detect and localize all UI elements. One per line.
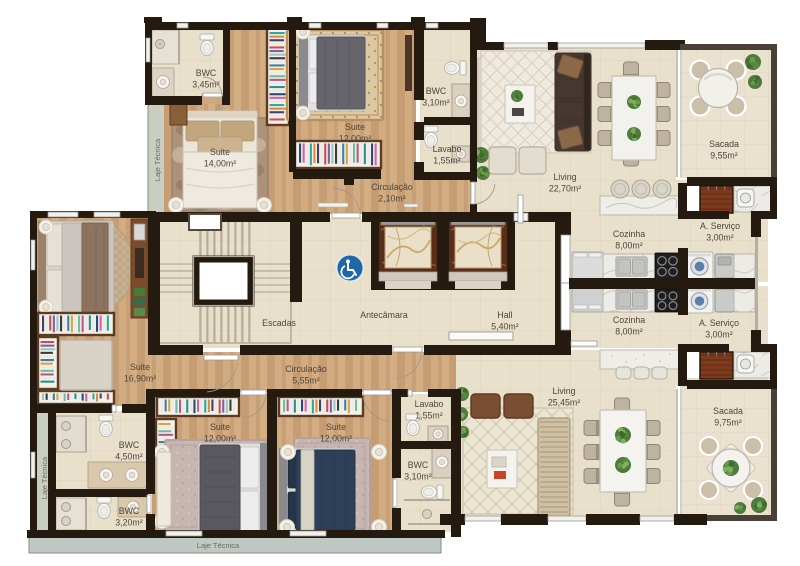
svg-text:1,55m²: 1,55m²: [415, 411, 442, 421]
svg-text:14,00m²: 14,00m²: [204, 159, 236, 169]
svg-text:2,10m²: 2,10m²: [378, 194, 405, 204]
svg-text:3,10m²: 3,10m²: [404, 472, 431, 482]
svg-text:Sacada: Sacada: [713, 406, 743, 416]
svg-text:Living: Living: [554, 172, 577, 182]
svg-text:3,10m²: 3,10m²: [422, 98, 449, 108]
svg-text:25,45m²: 25,45m²: [548, 398, 580, 408]
svg-text:Suite: Suite: [130, 362, 150, 372]
svg-text:BWC: BWC: [196, 68, 217, 78]
svg-text:BWC: BWC: [119, 506, 140, 516]
svg-text:1,55m²: 1,55m²: [433, 156, 460, 166]
svg-text:12,00m²: 12,00m²: [320, 434, 352, 444]
svg-text:12,00m²: 12,00m²: [339, 134, 371, 144]
svg-text:5,55m²: 5,55m²: [292, 376, 319, 386]
svg-text:8,00m²: 8,00m²: [615, 241, 642, 251]
svg-text:3,00m²: 3,00m²: [706, 233, 733, 243]
svg-text:12,00m²: 12,00m²: [204, 434, 236, 444]
svg-text:Suite: Suite: [326, 422, 346, 432]
svg-text:Laje Técnica: Laje Técnica: [197, 541, 240, 550]
svg-text:Suite: Suite: [345, 122, 365, 132]
svg-text:Living: Living: [553, 386, 576, 396]
svg-text:Circulação: Circulação: [371, 182, 413, 192]
svg-text:16,90m²: 16,90m²: [124, 374, 156, 384]
svg-text:Laje Técnica: Laje Técnica: [40, 456, 49, 499]
svg-text:Sacada: Sacada: [709, 139, 739, 149]
svg-text:Lavabo: Lavabo: [433, 144, 462, 154]
svg-text:Suite: Suite: [210, 147, 230, 157]
svg-text:A. Serviço: A. Serviço: [699, 318, 739, 328]
svg-text:Suite: Suite: [210, 422, 230, 432]
svg-text:3,00m²: 3,00m²: [705, 330, 732, 340]
svg-text:5,40m²: 5,40m²: [491, 322, 518, 332]
svg-text:8,00m²: 8,00m²: [615, 327, 642, 337]
svg-text:Hall: Hall: [497, 310, 512, 320]
svg-text:22,70m²: 22,70m²: [549, 184, 581, 194]
svg-text:Circulação: Circulação: [285, 364, 327, 374]
svg-text:Lavabo: Lavabo: [415, 399, 444, 409]
svg-text:A. Serviço: A. Serviço: [700, 221, 740, 231]
svg-text:Antecâmara: Antecâmara: [360, 310, 408, 320]
svg-text:3,45m²: 3,45m²: [192, 80, 219, 90]
svg-text:Laje Técnica: Laje Técnica: [153, 138, 162, 181]
svg-text:Cozinha: Cozinha: [613, 229, 645, 239]
svg-text:BWC: BWC: [426, 86, 447, 96]
svg-text:3,20m²: 3,20m²: [115, 518, 142, 528]
svg-text:Cozinha: Cozinha: [613, 315, 645, 325]
svg-text:4,50m²: 4,50m²: [115, 452, 142, 462]
svg-text:9,75m²: 9,75m²: [714, 418, 741, 428]
svg-text:9,55m²: 9,55m²: [710, 151, 737, 161]
svg-text:Escadas: Escadas: [262, 318, 296, 328]
svg-text:BWC: BWC: [119, 440, 140, 450]
svg-text:BWC: BWC: [408, 460, 429, 470]
